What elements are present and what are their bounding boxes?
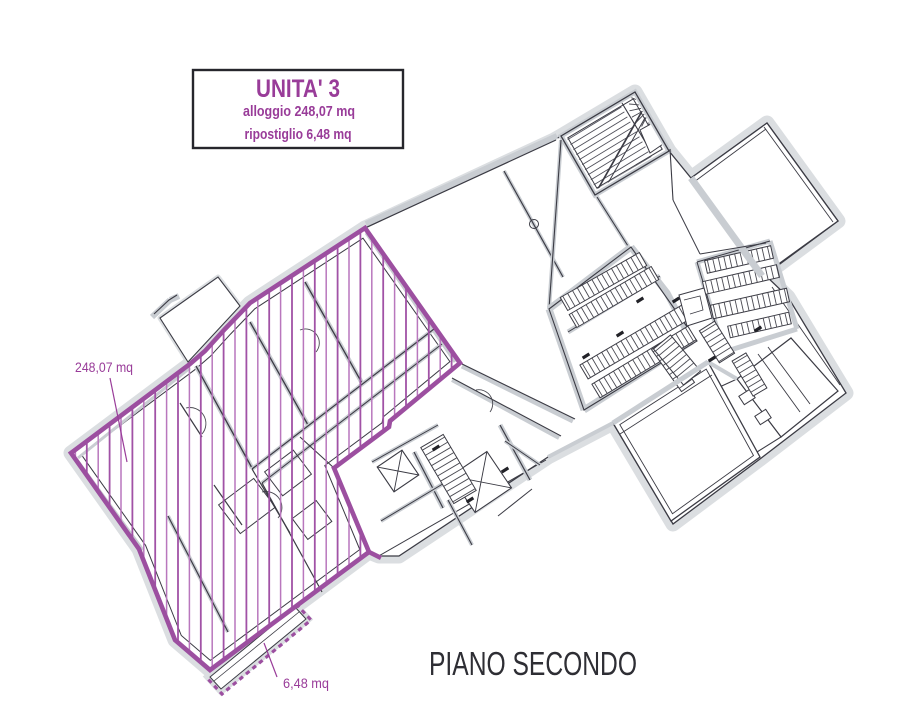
svg-text:248,07 mq: 248,07 mq — [75, 359, 133, 375]
svg-text:PIANO SECONDO: PIANO SECONDO — [429, 646, 637, 683]
svg-text:UNITA' 3: UNITA' 3 — [256, 75, 340, 103]
svg-text:alloggio 248,07 mq: alloggio 248,07 mq — [243, 103, 355, 120]
svg-text:6,48 mq: 6,48 mq — [283, 675, 329, 691]
svg-text:ripostiglio 6,48 mq: ripostiglio 6,48 mq — [245, 126, 352, 143]
